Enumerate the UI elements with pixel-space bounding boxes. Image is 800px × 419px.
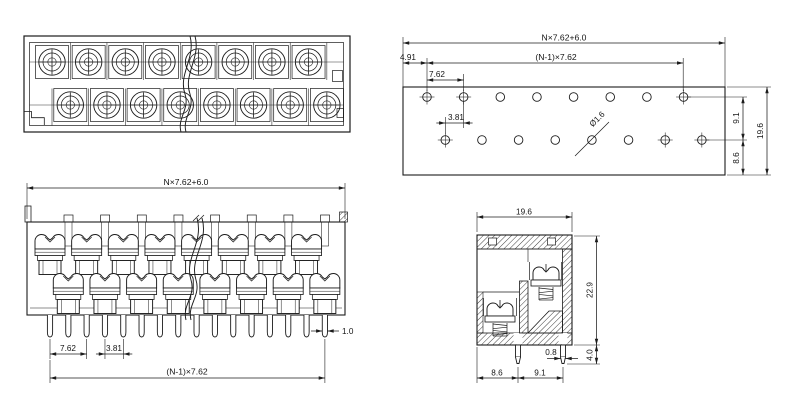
dim-front-pin-width: 1.0: [342, 327, 354, 336]
dim-footprint-row-stagger: 3.81: [448, 113, 464, 122]
footprint-view-linework: [403, 37, 771, 175]
dim-side-pin-length: 4.0: [586, 349, 595, 361]
dim-front-pin-span: (N-1)×7.62: [166, 367, 208, 377]
dim-front-pin-stagger: 3.81: [106, 344, 122, 353]
drawing-sheet: N×7.62+6.0 4.91 (N-1)×7.62 7.62 3.81 Ø1.…: [0, 0, 800, 419]
dim-side-depth: 19.6: [516, 208, 532, 217]
dim-footprint-bottom-margin: 8.6: [732, 152, 741, 164]
dim-side-pin-thickness: 0.8: [545, 348, 557, 357]
dim-footprint-overall-width: N×7.62+6.0: [542, 33, 587, 43]
dim-footprint-hole-diameter: Ø1.6: [588, 109, 607, 128]
side-view-linework: [477, 212, 600, 383]
dim-footprint-edge-offset: 4.91: [400, 53, 416, 62]
dim-footprint-hole-span: (N-1)×7.62: [535, 52, 577, 62]
footprint-view-labels: N×7.62+6.0 4.91 (N-1)×7.62 7.62 3.81 Ø1.…: [400, 33, 765, 164]
dim-side-front-pin-offset: 8.6: [491, 369, 503, 378]
terminal-block-technical-drawing: N×7.62+6.0 4.91 (N-1)×7.62 7.62 3.81 Ø1.…: [0, 0, 800, 419]
top-view-linework: [24, 36, 350, 132]
dim-footprint-row-spacing: 9.1: [732, 112, 741, 124]
dim-side-pin-row-spacing: 9.1: [534, 369, 546, 378]
dim-footprint-overall-depth: 19.6: [756, 123, 765, 139]
dim-footprint-pitch: 7.62: [429, 70, 445, 79]
front-view-linework: [25, 183, 348, 383]
dim-front-pitch: 7.62: [60, 344, 76, 353]
dim-side-height: 22.9: [586, 282, 595, 298]
dim-front-overall-width: N×7.62+6.0: [164, 177, 209, 187]
